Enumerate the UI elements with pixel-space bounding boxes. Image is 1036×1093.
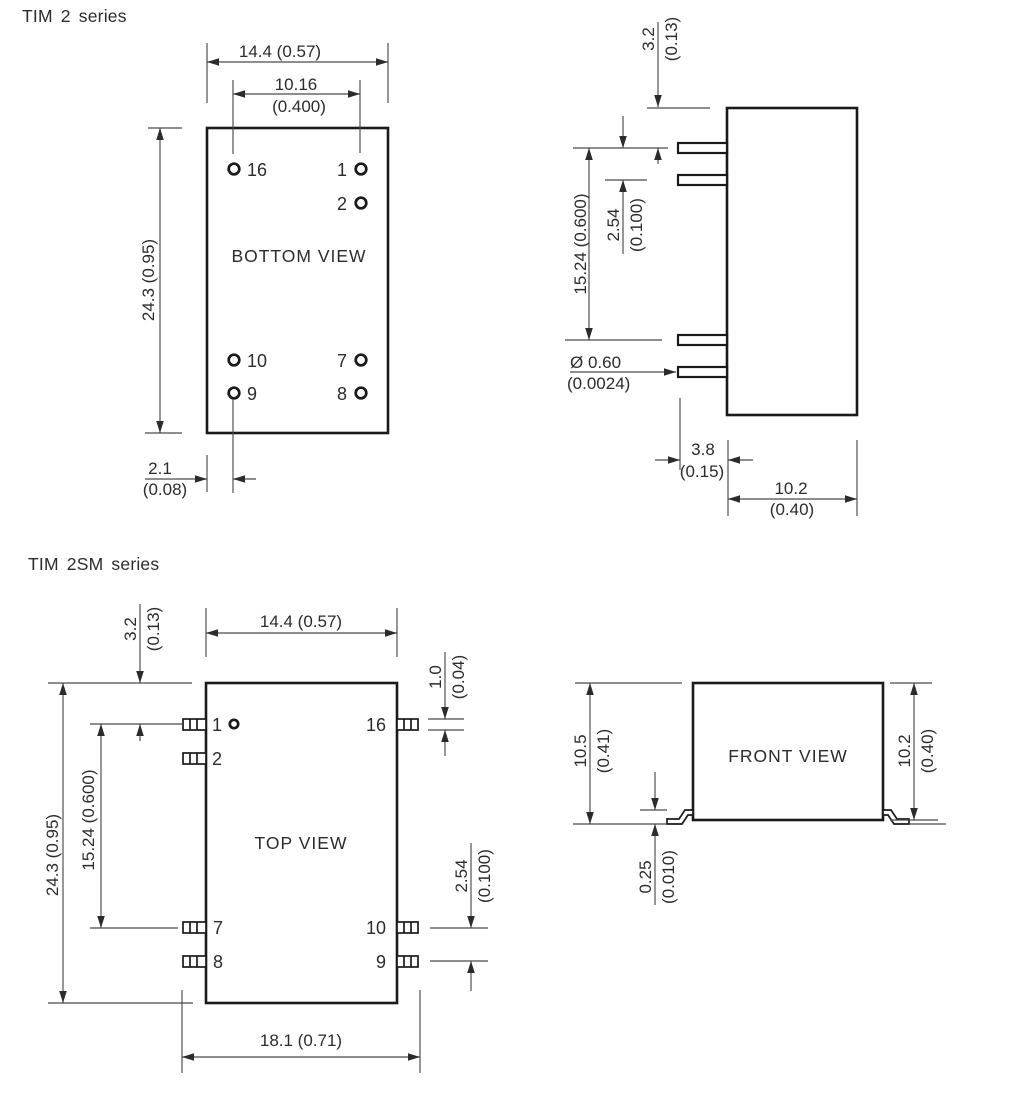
dim-sm-row-span: 15.24 (0.600) (79, 724, 178, 928)
side-pin-row4 (678, 367, 727, 377)
front-view-label: FRONT VIEW (728, 746, 848, 766)
pin-9-label: 9 (247, 384, 257, 404)
smd-pin-1 (183, 719, 206, 730)
pin-1-label: 1 (212, 715, 222, 735)
smd-pin-9 (397, 956, 418, 967)
dim-body-depth-mm: 10.2 (774, 479, 807, 498)
dim-sm-body-width: 14.4 (0.57) (206, 608, 397, 657)
dim-fv-height-left-mm: 10.5 (571, 734, 590, 767)
dim-pin-offset-mm: 2.1 (148, 459, 172, 478)
pin-8-label: 8 (337, 384, 347, 404)
pin-7-label: 7 (213, 918, 223, 938)
pin-8-hole (356, 388, 367, 399)
pin-10-label: 10 (366, 918, 386, 938)
dim-fv-height-right-in: (0.40) (918, 729, 937, 773)
dim-pin-diameter-mm: Ø 0.60 (570, 353, 621, 372)
dim-body-depth-in: (0.40) (770, 500, 814, 519)
pin-16-hole (229, 164, 240, 175)
dim-standoff-in: (0.13) (662, 17, 681, 61)
pin-2-label: 2 (212, 749, 222, 769)
dim-pin-diameter: Ø 0.60 (0.0024) (567, 353, 676, 393)
dim-sm-row-span-value: 15.24 (0.600) (79, 769, 98, 870)
dim-sm-lead-width-mm: 1.0 (426, 665, 445, 689)
smd-pin-10 (397, 922, 418, 933)
pin-2-label: 2 (337, 194, 347, 214)
dim-sm-standoff-mm: 3.2 (121, 617, 140, 641)
top-view-label: TOP VIEW (255, 833, 348, 853)
dim-fv-height-right-mm: 10.2 (895, 734, 914, 767)
dim-pin-row-span: 15.24 (0.600) (571, 148, 590, 340)
bottom-view-label: BOTTOM VIEW (231, 246, 366, 266)
tim2sm-title: TIM 2SM series (28, 554, 159, 574)
dim-sm-standoff: 3.2 (0.13) (48, 604, 192, 741)
tim2sm-front-view: FRONT VIEW 10.5 (0.41) 10.2 (0.40) 0.25 (571, 683, 946, 905)
pin-10-label: 10 (247, 351, 267, 371)
dim-sm-body-height: 24.3 (0.95) (43, 683, 193, 1003)
pin-7-hole (356, 355, 367, 366)
tim2-side-view: 3.2 (0.13) 2.54 (0.100) 15.24 (0.600) Ø … (565, 17, 857, 519)
side-view-pins (678, 143, 727, 377)
pin-16-label: 16 (366, 715, 386, 735)
pin-1-indicator-dot (230, 720, 238, 728)
tim2sm-top-view: 1 2 16 7 8 10 9 TOP VIEW 14.4 (0.57) 3.2… (43, 604, 494, 1073)
dim-sm-pin-pitch-mm: 2.54 (452, 859, 471, 892)
dim-pin-span: 10.16 (0.400) (233, 75, 360, 154)
pin-8-label: 8 (213, 952, 223, 972)
dim-standoff: 3.2 (0.13) (639, 17, 681, 164)
dim-pin-span-in: (0.400) (272, 97, 326, 116)
dim-sm-lead-width: 1.0 (0.04) (426, 652, 468, 756)
pin-2-hole (356, 198, 367, 209)
front-view-left-lead (667, 810, 693, 824)
dim-body-height: 24.3 (0.95) (139, 128, 182, 433)
dim-body-width-value: 14.4 (0.57) (239, 42, 321, 61)
pin-7-label: 7 (337, 351, 347, 371)
smd-pin-8 (183, 956, 206, 967)
pin-1-label: 1 (337, 160, 347, 180)
dim-fv-standoff-mm: 0.25 (636, 860, 655, 893)
dim-fv-standoff-in: (0.010) (659, 850, 678, 904)
dim-fv-height-right: 10.2 (0.40) (890, 683, 938, 820)
side-pin-row3 (678, 335, 727, 345)
mechanical-drawing-page: TIM 2 series 16 1 2 10 9 7 8 BOTTOM VIEW (0, 0, 1036, 1093)
dim-pin-pitch-in: (0.100) (627, 198, 646, 252)
dim-pin-length-mm: 3.8 (691, 440, 715, 459)
smd-pin-16 (397, 719, 418, 730)
dim-sm-pin-pitch-in: (0.100) (475, 849, 494, 903)
dim-sm-body-height-value: 24.3 (0.95) (43, 814, 62, 896)
dim-sm-standoff-in: (0.13) (144, 607, 163, 651)
dim-sm-pin-pitch: 2.54 (0.100) (430, 843, 494, 991)
pin-1-hole (356, 164, 367, 175)
side-view-body-outline (727, 108, 857, 415)
dim-pin-span-mm: 10.16 (275, 75, 318, 94)
dim-body-height-value: 24.3 (0.95) (139, 239, 158, 321)
dim-pin-diameter-in: (0.0024) (567, 374, 630, 393)
dim-standoff-mm: 3.2 (639, 27, 658, 51)
dim-pin-row-span-value: 15.24 (0.600) (571, 193, 590, 294)
bottom-view-pin-numbers: 16 1 2 10 9 7 8 (247, 160, 347, 404)
front-view-right-lead (883, 810, 909, 824)
dim-sm-body-width-value: 14.4 (0.57) (260, 612, 342, 631)
dim-pin-length-in: (0.15) (680, 462, 724, 481)
tim2-title: TIM 2 series (22, 6, 127, 26)
smd-pin-2 (183, 753, 206, 764)
dim-body-depth: 10.2 (0.40) (728, 440, 857, 519)
dim-fv-height-left: 10.5 (0.41) (571, 683, 682, 824)
side-pin-row2 (678, 175, 727, 185)
dim-sm-lead-width-in: (0.04) (449, 655, 468, 699)
side-pin-row1 (678, 143, 727, 153)
pin-9-hole (229, 388, 240, 399)
smd-pin-7 (183, 922, 206, 933)
dim-pin-pitch-mm: 2.54 (604, 208, 623, 241)
pin-10-hole (229, 355, 240, 366)
dim-fv-standoff: 0.25 (0.010) (636, 772, 678, 905)
dim-fv-height-left-in: (0.41) (594, 729, 613, 773)
tim2-bottom-view: 16 1 2 10 9 7 8 BOTTOM VIEW 14.4 (0.57) … (139, 42, 388, 499)
dim-pin-offset-in: (0.08) (143, 480, 187, 499)
pin-16-label: 16 (247, 160, 267, 180)
dim-sm-overall-width-value: 18.1 (0.71) (260, 1031, 342, 1050)
pin-9-label: 9 (376, 952, 386, 972)
dim-pin-pitch: 2.54 (0.100) (604, 116, 646, 254)
package-dimension-drawing: TIM 2 series 16 1 2 10 9 7 8 BOTTOM VIEW (0, 0, 1036, 1093)
